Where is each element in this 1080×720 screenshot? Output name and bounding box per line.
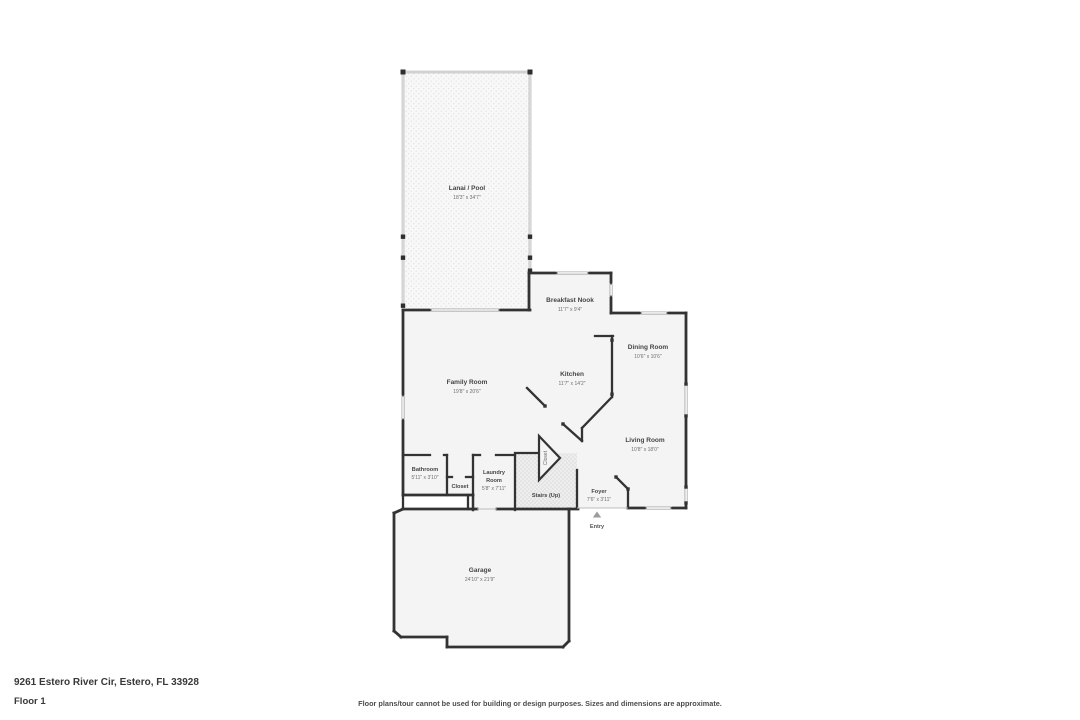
entry-marker: Entry [590, 512, 605, 531]
dims-garage: 24'10" x 21'9" [465, 577, 495, 583]
dims-foyer: 7'6" x 3'11" [587, 497, 611, 503]
property-address: 9261 Estero River Cir, Estero, FL 33928 [14, 677, 199, 688]
floor-plan-drawing: Lanai / Pool 18'3" x 34'7" Breakfast Noo… [0, 0, 1080, 720]
label-laundry-2: Room [486, 478, 502, 484]
label-dining: Dining Room [628, 344, 669, 351]
label-family: Family Room [447, 379, 488, 386]
entry-label: Entry [590, 524, 605, 530]
label-foyer: Foyer [591, 489, 607, 495]
label-lanai: Lanai / Pool [449, 185, 486, 192]
label-living: Living Room [625, 437, 665, 444]
label-stairs: Stairs (Up) [532, 493, 560, 499]
dims-lanai: 18'3" x 34'7" [453, 195, 481, 201]
dims-living: 10'8" x 18'0" [631, 447, 659, 453]
label-nook: Breakfast Nook [546, 297, 594, 304]
dims-bathroom: 5'11" x 3'10" [411, 475, 438, 481]
label-kitchen: Kitchen [560, 371, 584, 378]
dims-kitchen: 11'7" x 14'2" [558, 381, 585, 387]
label-closet-stairs: Closet [543, 450, 549, 465]
label-closet-hall: Closet [451, 484, 468, 490]
dims-nook: 11'7" x 9'4" [558, 307, 582, 313]
disclaimer-text: Floor plans/tour cannot be used for buil… [0, 699, 1080, 708]
dims-family: 19'8" x 20'6" [453, 389, 481, 395]
floor-plan-page: Lanai / Pool 18'3" x 34'7" Breakfast Noo… [0, 0, 1080, 720]
label-bathroom: Bathroom [412, 467, 438, 473]
label-laundry-1: Laundry [483, 470, 506, 476]
label-garage: Garage [469, 567, 492, 574]
dims-laundry: 5'8" x 7'11" [482, 486, 506, 492]
entry-arrow-icon [593, 512, 601, 518]
dims-dining: 10'6" x 10'6" [634, 354, 662, 360]
